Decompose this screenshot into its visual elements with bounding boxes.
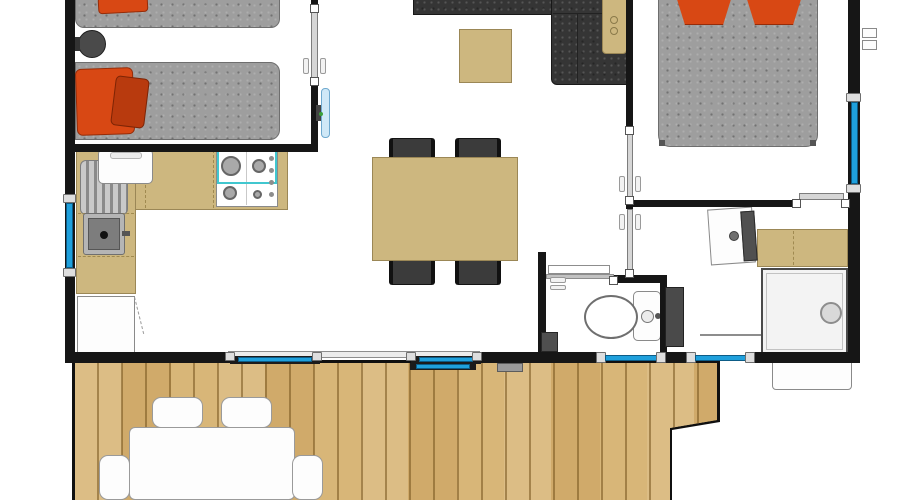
counter-divider	[213, 150, 214, 208]
red-pillow-small	[110, 75, 150, 129]
door-handle	[320, 58, 326, 74]
cup-holder	[610, 27, 618, 35]
outdoor-chair	[152, 397, 203, 428]
sink-drain	[100, 231, 108, 239]
window-cap	[63, 268, 76, 277]
hob-knob	[269, 156, 274, 161]
round-bedside-table	[78, 30, 106, 58]
counter-divider	[78, 256, 134, 257]
cup-holder	[610, 16, 618, 24]
door-handle	[550, 285, 566, 290]
wall-left	[65, 0, 75, 363]
exterior-fixture	[862, 28, 877, 38]
vanity-counter	[757, 229, 848, 267]
door-hinge	[310, 77, 319, 86]
door-roller	[472, 352, 482, 361]
fridge-door-swing	[134, 297, 144, 334]
door-handle	[635, 176, 641, 192]
window-cap	[656, 352, 666, 363]
right-wall-window	[851, 102, 858, 184]
door-hinge	[841, 199, 850, 208]
dining-table	[372, 157, 518, 261]
door-hinge	[310, 4, 319, 13]
door-roller	[312, 352, 322, 361]
master-bedroom-door	[627, 132, 633, 198]
sofa-seam	[577, 13, 578, 83]
waste-bin	[541, 332, 558, 352]
patio-sliding-door-glass	[416, 364, 470, 369]
window-cap	[846, 93, 861, 102]
washbasin-faucet	[729, 231, 739, 241]
corner-sofa-arm	[413, 0, 558, 15]
floor-plan	[0, 0, 900, 500]
window-cap	[63, 194, 76, 203]
red-pillow	[676, 0, 732, 25]
wall-wc-north	[613, 275, 667, 283]
door-handle	[619, 214, 625, 230]
sink-faucet	[122, 231, 130, 236]
patio-sliding-door-glass	[419, 357, 473, 362]
tv-led	[319, 112, 323, 116]
bed-foot	[810, 140, 816, 146]
wall-bottom-a	[65, 352, 230, 363]
washbasin-vanity	[740, 211, 757, 262]
bottom-wall-window-2	[695, 355, 746, 361]
wc-sliding-door	[548, 265, 610, 274]
shower-drain	[820, 302, 842, 324]
door-hinge	[625, 126, 634, 135]
hob-knob	[269, 180, 274, 185]
hob-knob	[269, 168, 274, 173]
exterior-fixture	[862, 40, 877, 50]
outdoor-side-chair	[99, 455, 130, 500]
red-pillow	[746, 0, 802, 25]
wall-bottom-d	[753, 352, 860, 363]
door-roller	[225, 352, 235, 361]
window-cap	[745, 352, 755, 363]
door-roller	[406, 352, 416, 361]
door-handle	[550, 277, 566, 283]
door-hinge	[625, 196, 634, 205]
door-hinge	[625, 269, 634, 278]
toilet-bowl	[584, 295, 638, 339]
bed-foot	[659, 140, 665, 146]
door-handle	[619, 176, 625, 192]
hob-burner	[252, 159, 266, 173]
shower-entry-line	[700, 334, 761, 336]
dining-chair	[389, 257, 435, 285]
double-bed	[658, 0, 818, 147]
hob-knob	[269, 192, 274, 197]
outdoor-table	[129, 427, 295, 500]
door-hinge	[609, 276, 618, 285]
wall-bedroom1-south	[65, 144, 318, 152]
twin-bedroom-door	[311, 10, 318, 82]
vanity-divider	[793, 231, 794, 265]
wall-bathroom-north	[626, 200, 793, 207]
door-handle	[635, 214, 641, 230]
appliance-slot	[110, 152, 142, 159]
water-heater	[665, 287, 684, 347]
under-counter-fridge	[77, 296, 135, 353]
patio-sliding-door-glass	[238, 357, 312, 362]
bottom-wall-window-1	[605, 355, 657, 361]
left-wall-window	[66, 203, 73, 268]
door-handle	[303, 58, 309, 74]
window-cap	[846, 184, 861, 193]
toilet-flush-button	[641, 310, 654, 323]
door-mat	[497, 363, 523, 372]
outdoor-chair	[221, 397, 272, 428]
hob-burner-large	[221, 156, 241, 176]
door-hinge	[792, 199, 801, 208]
ensuite-door	[799, 193, 844, 200]
hob-burner	[223, 186, 237, 200]
dining-chair	[455, 257, 501, 285]
hob-burner-small	[253, 190, 262, 199]
shower-room-door	[627, 209, 633, 271]
outdoor-side-chair	[292, 455, 323, 500]
wall-living-east	[626, 0, 633, 130]
coffee-table	[459, 29, 512, 83]
